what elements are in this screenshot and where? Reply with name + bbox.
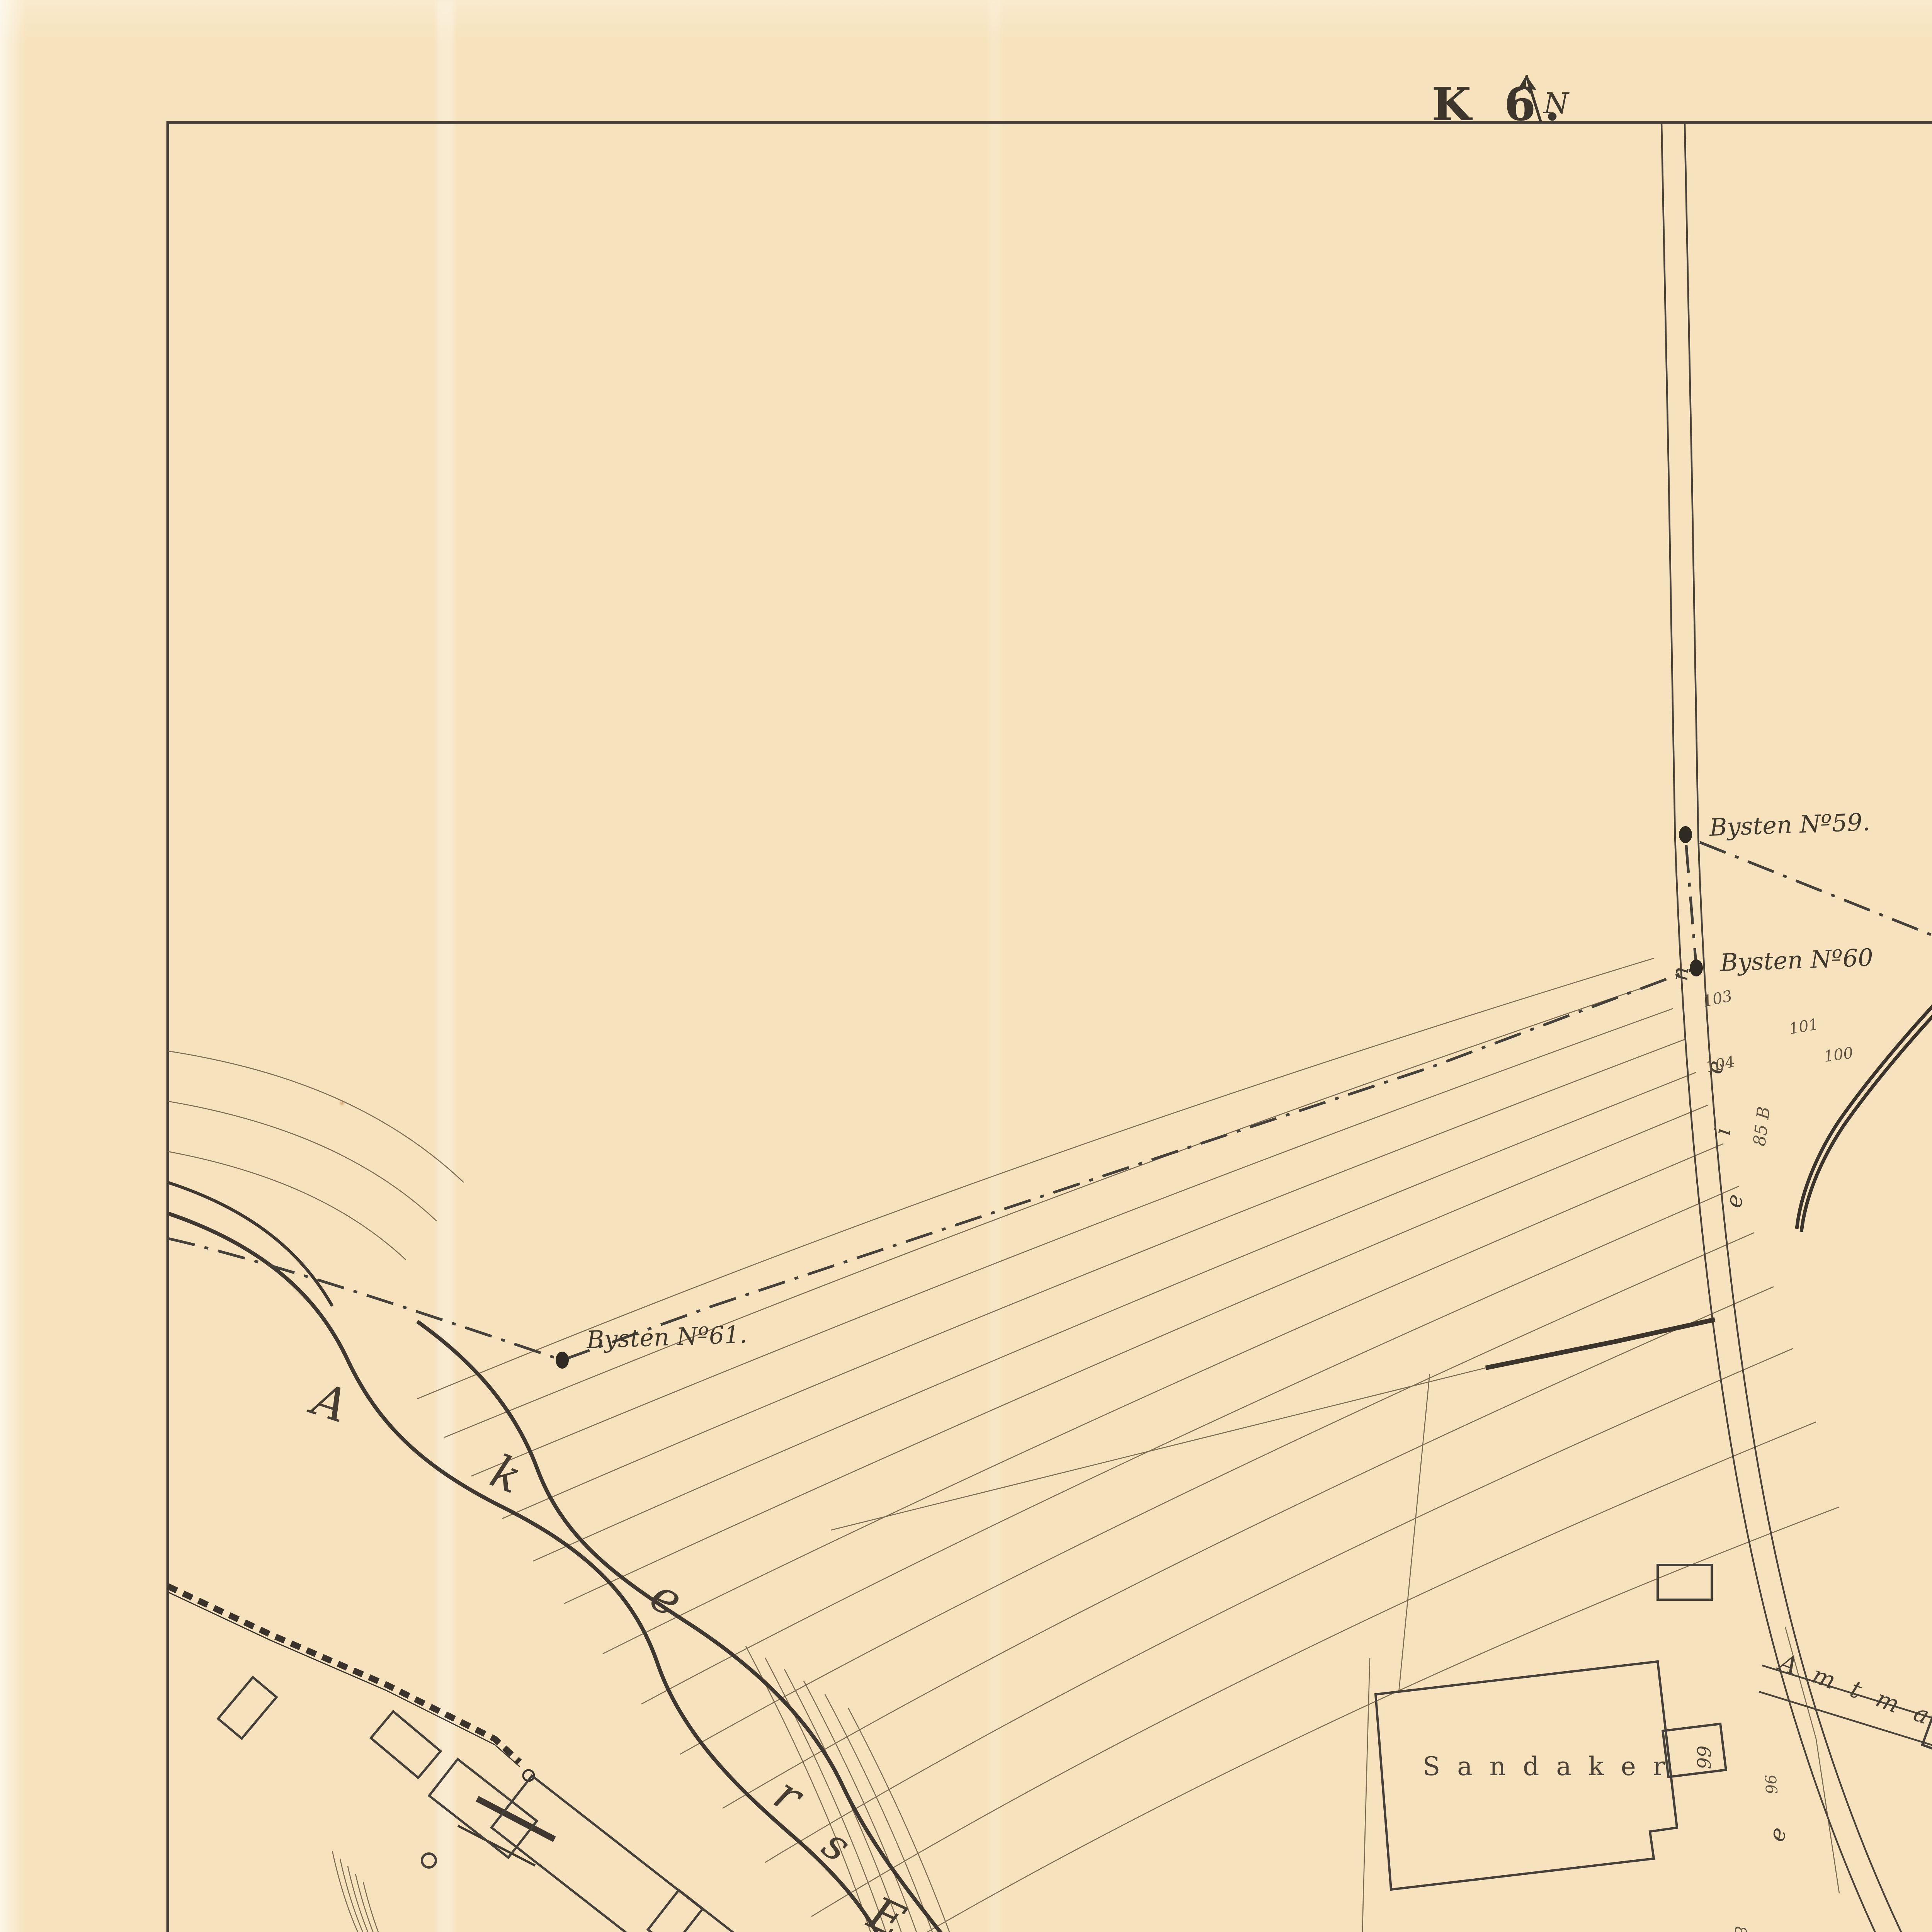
bysten-markers bbox=[556, 826, 1932, 1369]
map-linework bbox=[0, 0, 1932, 1932]
city-boundary bbox=[168, 837, 1932, 1360]
foxing-spot bbox=[340, 1101, 344, 1105]
roads bbox=[168, 122, 1932, 1932]
contour-lines bbox=[168, 927, 1932, 1932]
buildings bbox=[202, 942, 1932, 1932]
map-sheet: Bysten Nº59.Bysten Nº60Bysten Nº58.Byste… bbox=[0, 0, 1932, 1932]
north-letter: N bbox=[1544, 87, 1569, 120]
railway-line bbox=[168, 1586, 534, 1781]
river-akerselva bbox=[168, 1182, 1866, 1932]
